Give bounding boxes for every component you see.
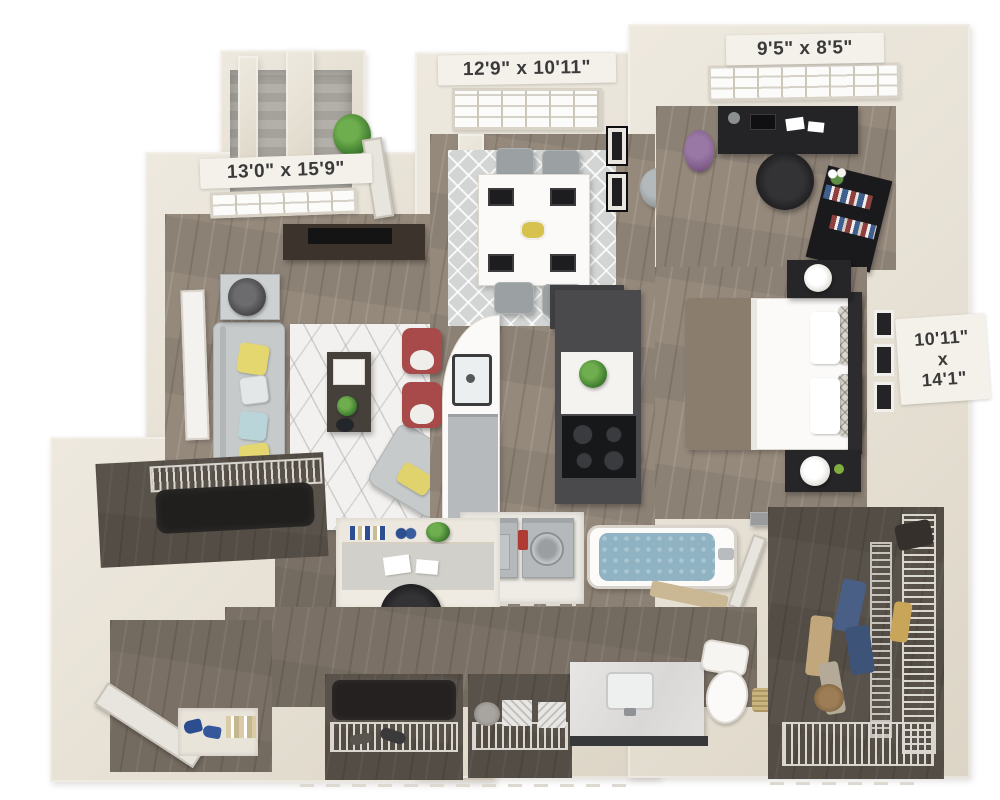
bedroom-wall-art-frame	[874, 310, 894, 338]
balcony-column	[286, 50, 314, 170]
coffee-table-tray	[333, 359, 365, 385]
bar-stool-seat	[410, 404, 434, 424]
walkin-stool	[814, 684, 844, 712]
office-chair	[756, 152, 814, 210]
nightstand-apple	[834, 464, 844, 474]
detergent-bottle-red	[518, 530, 528, 550]
bedroom-wall-art-frame	[874, 344, 894, 376]
laptop	[750, 114, 776, 130]
sofa-pillow-yellow	[236, 342, 270, 376]
bed-pillow-white	[810, 312, 840, 364]
dishwasher-front	[448, 414, 498, 524]
desk-papers	[785, 117, 804, 131]
walkin-wire-shelf-inner	[870, 542, 892, 738]
bathtub-faucet	[718, 548, 734, 560]
placemat	[550, 254, 576, 272]
office-plant-purple	[684, 130, 714, 172]
closet-a-hanging-clothes	[332, 680, 456, 720]
vanity-dark-base	[570, 736, 708, 746]
headboard	[848, 292, 862, 454]
table-centerpiece	[520, 220, 546, 240]
nook-books	[350, 526, 386, 540]
vanity-sink	[606, 672, 654, 710]
kitchen-counter-plant	[579, 360, 607, 388]
bedside-lamp	[804, 264, 832, 292]
tv-screen	[308, 228, 392, 244]
balcony-column	[238, 56, 258, 168]
desk-papers	[808, 121, 825, 133]
bed-blanket-taupe	[685, 298, 751, 450]
bedroom-dimension-line2: x	[937, 348, 949, 369]
sofa-back-cushion-line	[220, 326, 226, 476]
sofa-pillow-patterned	[238, 374, 269, 405]
office-dimension-text: 9'5" x 8'5"	[757, 37, 853, 61]
nook-paper	[383, 554, 411, 575]
coat-closet-hanging-clothes	[155, 482, 315, 534]
bedroom-wall-art-frame	[874, 382, 894, 412]
bedroom-dimension-label: 10'11" x 14'1"	[895, 313, 991, 405]
nook-paper	[415, 559, 438, 575]
hallway-art-frame	[606, 172, 628, 212]
desk-lamp	[728, 112, 740, 124]
bedside-lamp	[800, 456, 830, 486]
bed-pillow-white	[810, 378, 840, 434]
walkin-wire-shelf-bottom	[782, 722, 934, 766]
nook-blue-decor	[394, 527, 418, 540]
bathtub-water	[599, 533, 715, 581]
kitchen-faucet	[466, 374, 475, 383]
dining-dimension-label: 12'9" x 10'11"	[438, 52, 616, 85]
dining-chair	[494, 282, 534, 314]
hallway-art-frame	[606, 126, 628, 166]
nook-plant	[426, 522, 450, 542]
living-room-dimension-label: 13'0" x 15'9"	[200, 153, 373, 189]
vanity-faucet	[624, 708, 636, 716]
coffee-table-plant	[337, 396, 357, 416]
dining-dimension-text: 12'9" x 10'11"	[463, 57, 591, 81]
office-window	[708, 62, 901, 101]
dryer-door	[530, 532, 564, 566]
plan-edge-dashes	[300, 784, 630, 787]
table-lamp	[228, 278, 266, 316]
cooktop	[562, 416, 636, 478]
placemat	[488, 188, 514, 206]
bookshelf-flowers	[822, 164, 852, 186]
bedroom-dimension-line3: 14'1"	[921, 368, 968, 392]
plan-edge-dashes	[770, 782, 920, 785]
coffee-table-bowl	[336, 418, 354, 432]
floor-plan: 13'0" x 15'9" 12'9" x 10'11"	[50, 22, 970, 784]
bed-sheet-fold	[751, 298, 757, 450]
dining-window	[452, 88, 602, 130]
living-room-dimension-text: 13'0" x 15'9"	[227, 158, 346, 184]
office-dimension-label: 9'5" x 8'5"	[726, 33, 884, 66]
living-room-window	[210, 187, 358, 218]
bedroom-dimension-line1: 10'11"	[913, 326, 969, 350]
closet-b-basket	[474, 702, 500, 726]
entry-books	[226, 716, 256, 738]
sofa-pillow-blue	[238, 411, 269, 442]
closet-b-bin	[538, 702, 566, 728]
placemat	[550, 188, 576, 206]
placemat	[488, 254, 514, 272]
bar-stool-seat	[410, 350, 434, 370]
closet-b-bin	[502, 700, 532, 726]
